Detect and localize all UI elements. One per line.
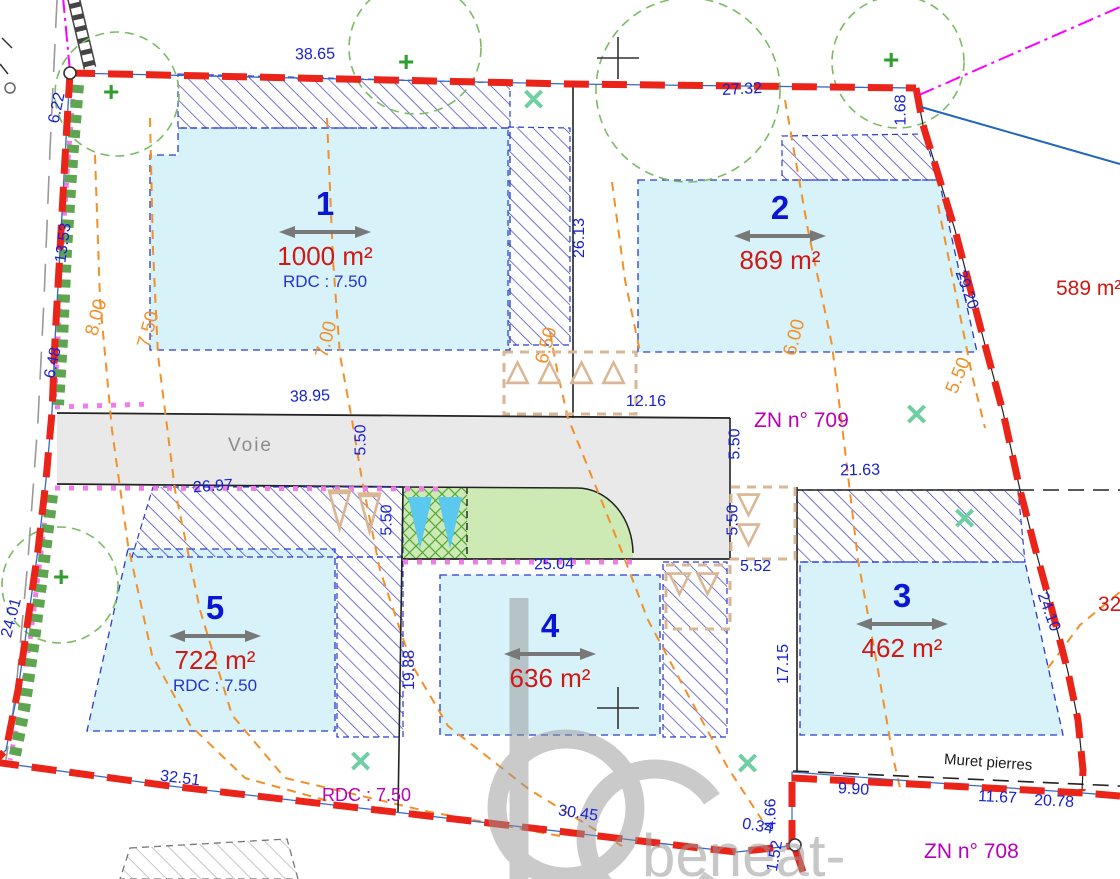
watermark-text: beneat-chauvel.com [642,826,1120,879]
dim-label: 5.50 [726,504,742,535]
dim-label: 27.32 [722,81,763,99]
triangle-down-icon: ▽ [696,568,719,598]
steps-strip [73,0,90,68]
zn-label: ZN n° 708 [924,841,1019,862]
lot-5-number: 5 [135,590,295,626]
lot-2-area: 869 m² [695,246,865,276]
dim-label: 5.50 [354,424,370,455]
plus-icon: + [103,78,119,106]
cross-x-icon: ✕ [735,750,760,780]
lot-1-label: 1 1000 m² RDC : 7.50 [240,186,410,293]
cross-x-icon: ✕ [904,401,929,431]
areaadj-label: 589 m² [1056,278,1120,299]
extent-arrow-icon [734,229,826,243]
lot-4-area: 636 m² [475,664,625,694]
extent-arrow-icon [504,647,596,661]
plan-drawing [0,0,1120,879]
plus-icon: + [53,563,69,591]
lot-4-number: 4 [475,608,625,644]
dim-label: 4.66 [764,798,780,829]
extent-arrow-icon [856,617,948,631]
existing-building [120,839,298,879]
triangle-up-icon: △ [506,356,529,386]
dim-label: 12.16 [626,394,666,410]
lot-1-area: 1000 m² [240,242,410,272]
dim-label: 25.04 [534,557,574,574]
lot-3-number: 3 [832,578,972,614]
lot-2-number: 2 [695,190,865,226]
dim-label: 20.78 [1034,793,1075,811]
extent-arrow-icon [279,225,371,239]
dim-label: 38.65 [295,47,335,64]
triangle-up-icon: △ [570,356,593,386]
dim-label: 26.97 [192,478,233,497]
triangle-up-icon: △ [602,356,625,386]
dim-label: 26.13 [572,218,588,258]
lot-1-number: 1 [240,186,410,222]
road-label: Voie [228,436,273,455]
lot-1-rdc: RDC : 7.50 [240,272,410,292]
rdcm-label: RDC : 7.50 [322,786,411,804]
lot-4-label: 4 636 m² [475,608,625,694]
lot-2-label: 2 869 m² [695,190,865,276]
dim-label: 5.52 [740,559,771,575]
zn-label: ZN n° 709 [754,410,849,431]
cross-x-icon: ✕ [952,505,977,535]
lot-5-label: 5 722 m² RDC : 7.50 [135,590,295,697]
areaadj-label: 32 [1098,594,1120,615]
cross-x-icon: ✕ [521,86,546,116]
plus-icon: + [883,46,899,74]
dim-label: 17.15 [776,644,792,684]
lot-3-label: 3 462 m² [832,578,972,664]
cadastral-plan: beneat-chauvel.com 1 1000 m² RDC : 7.50 … [0,0,1120,879]
lot-5-area: 722 m² [135,646,295,676]
lot-5-rdc: RDC : 7.50 [135,676,295,696]
dim-label: 9.90 [838,781,870,799]
dim-label: 38.95 [290,388,331,405]
triangle-down-icon: ▽ [668,568,691,598]
lot-3-area: 462 m² [832,634,972,664]
dim-label: 11.67 [978,789,1018,807]
dim-label: 21.63 [840,463,880,480]
triangle-down-icon: ▽ [328,482,351,536]
dim-label: 19.88 [402,650,418,690]
dim-label: 1.68 [894,94,910,125]
extent-arrow-icon [169,629,261,643]
dim-label: 5.50 [728,428,744,459]
cross-x-icon: ✕ [348,748,373,778]
dim-label: 5.50 [380,504,396,535]
plus-icon: + [398,48,414,76]
